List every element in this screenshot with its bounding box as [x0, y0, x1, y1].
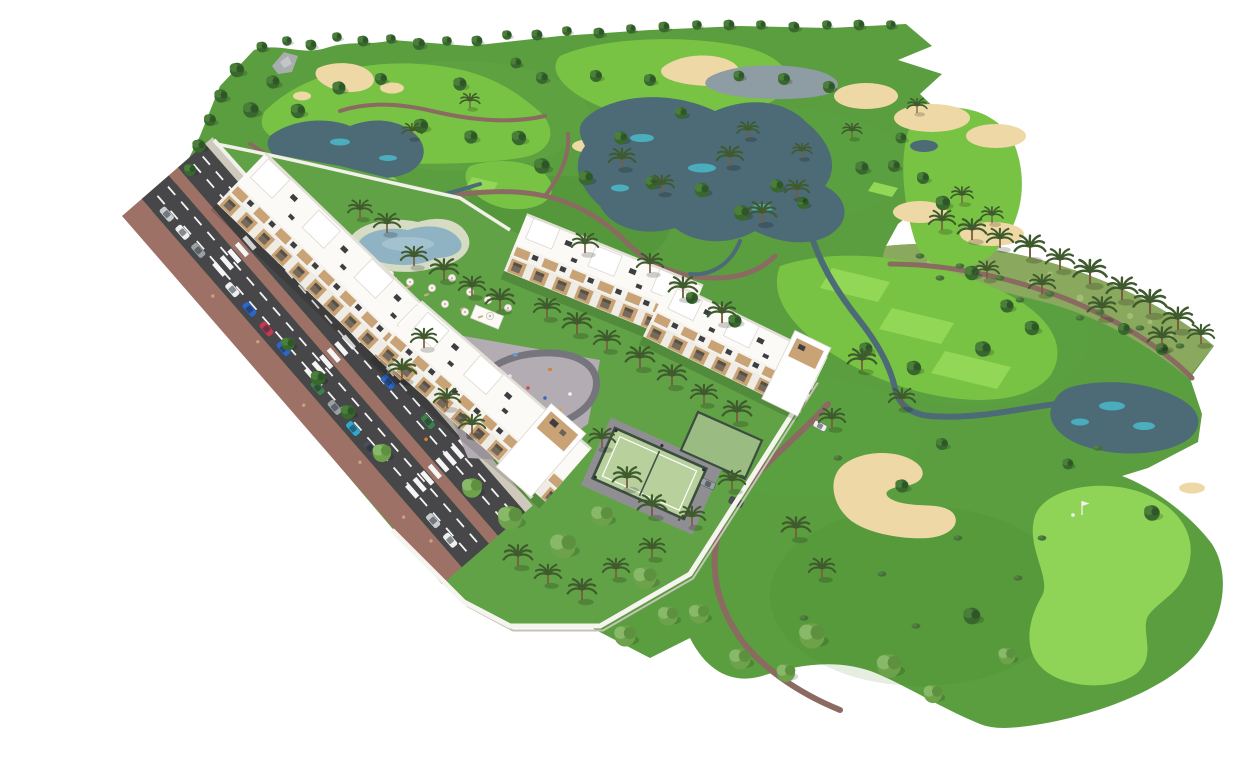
golfer: [1071, 513, 1075, 517]
render-canvas: [40, 16, 1240, 742]
site-aerial-render: [40, 16, 1240, 742]
